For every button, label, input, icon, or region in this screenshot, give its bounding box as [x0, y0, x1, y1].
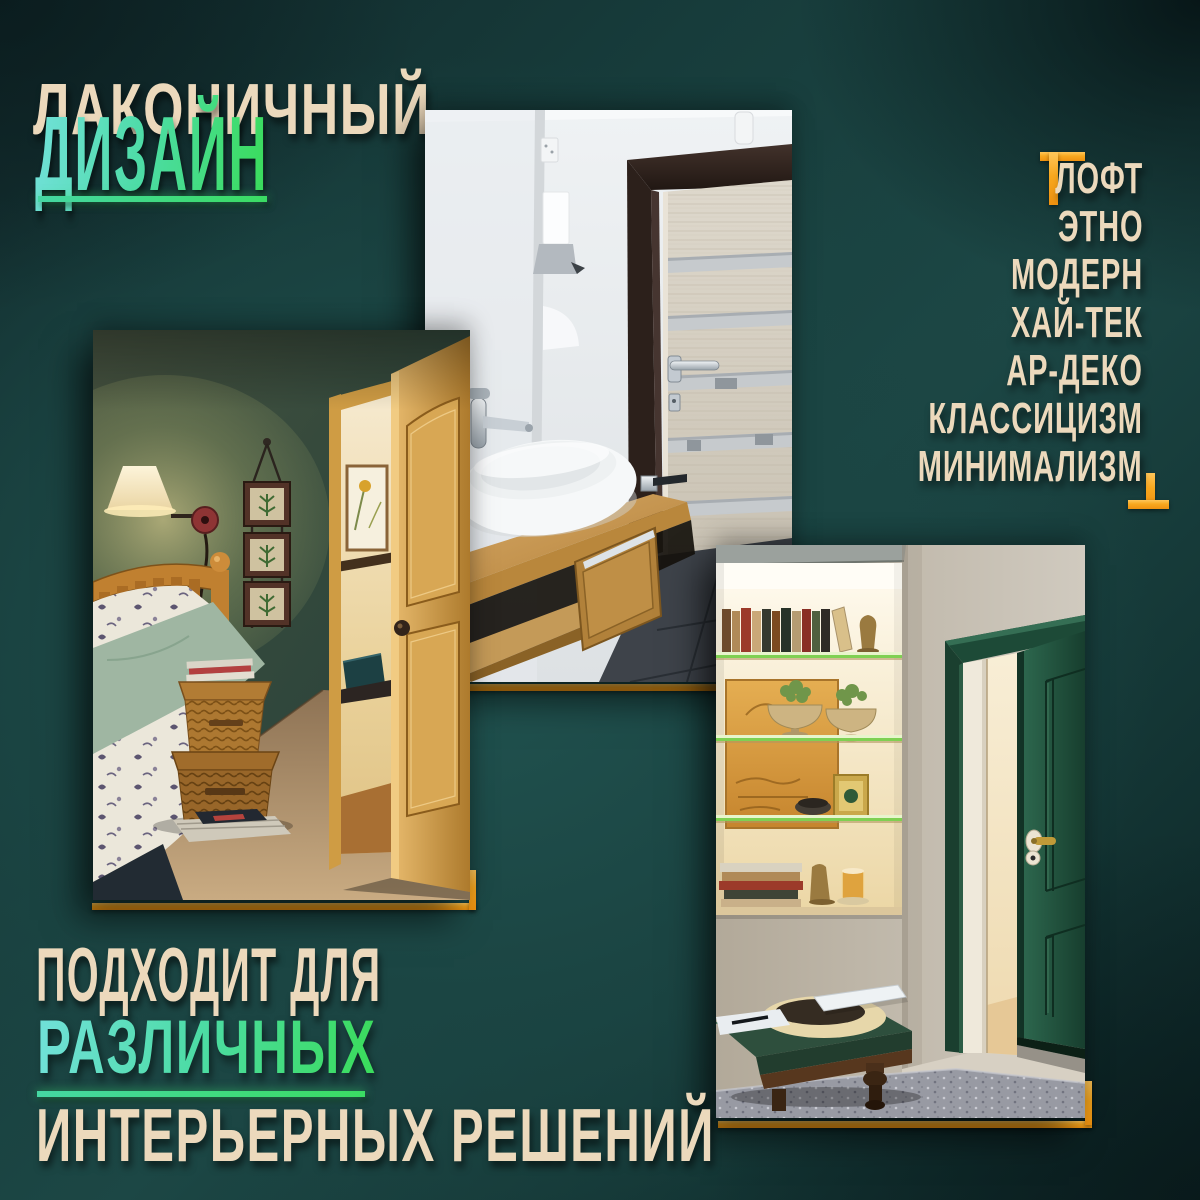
photo-bedroom: [93, 330, 470, 900]
footer-line-2: РАЗЛИЧНЫХ: [37, 1010, 543, 1086]
style-item-modern: МОДЕРН: [802, 251, 1143, 299]
livingroom-photo-underline-stub: [1085, 1081, 1092, 1125]
style-item-minimalism: МИНИМАЛИЗМ: [802, 443, 1143, 491]
title-underline-accent: [38, 196, 267, 202]
style-item-etno: ЭТНО: [802, 203, 1143, 251]
bedroom-photo-underline-stub: [469, 870, 476, 910]
promo-banner: ЛАКОНИЧНЫЙ ДИЗАЙН ЛОФТ ЭТНО МОДЕРН ХАЙ-Т…: [0, 0, 1200, 1200]
photo-bedroom-image: [93, 330, 470, 900]
photo-living-room: [716, 545, 1085, 1118]
corner-bracket-bottom-icon: [1128, 500, 1169, 509]
bedroom-photo-underline: [92, 903, 476, 910]
footer-line-1: ПОДХОДИТ ДЛЯ: [36, 938, 675, 1014]
footer-line-3: ИНТЕРЬЕРНЫХ РЕШЕНИЙ: [36, 1098, 1073, 1173]
photo-living-room-image: [716, 545, 1085, 1118]
styles-list: ЛОФТ ЭТНО МОДЕРН ХАЙ-ТЕК АР-ДЕКО КЛАССИЦ…: [802, 155, 1143, 491]
style-item-classicism: КЛАССИЦИЗМ: [802, 395, 1143, 443]
style-item-artdeco: АР-ДЕКО: [802, 347, 1143, 395]
style-item-hitech: ХАЙ-ТЕК: [802, 299, 1143, 347]
style-item-loft: ЛОФТ: [802, 155, 1143, 203]
